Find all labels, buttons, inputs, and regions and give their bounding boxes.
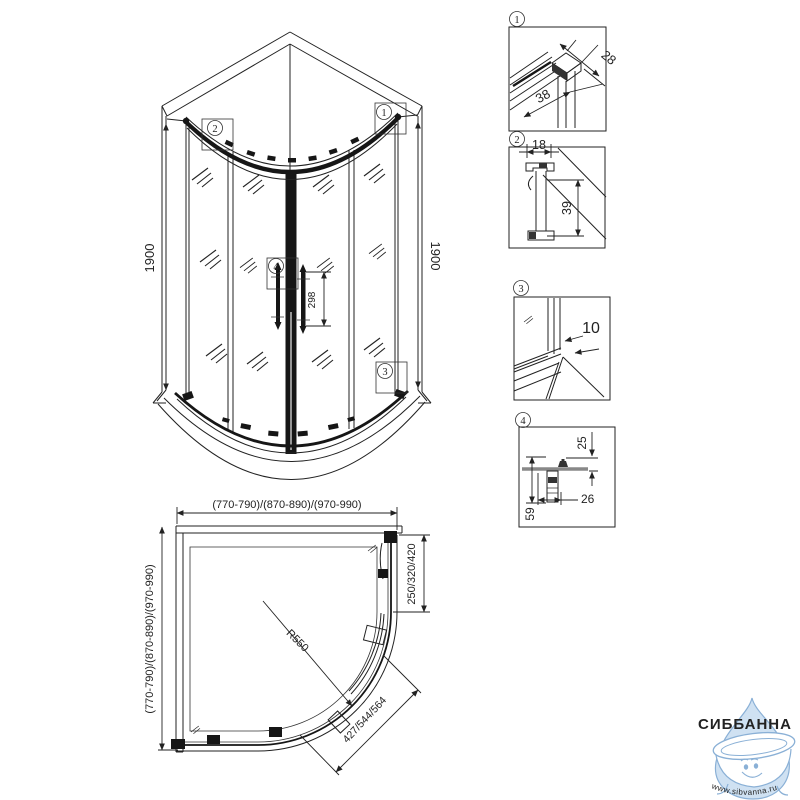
plan-glass-mark	[368, 545, 377, 553]
plan-width-dimension: (770-790)/(870-890)/(970-990)	[177, 499, 397, 530]
glass-front-inner	[183, 537, 388, 742]
sliding-door-edges	[349, 543, 384, 694]
glass-front-outer	[183, 535, 391, 745]
radius-dimension: R550	[263, 601, 352, 706]
side-opening-text: 250/320/420	[406, 543, 418, 604]
detail-3: 3 10	[514, 281, 611, 401]
detail-2-label: 2	[514, 135, 519, 146]
detail-4-dim-c: 59	[523, 507, 537, 521]
door-opening-text: 427/544/564	[341, 694, 390, 745]
detail-4: 4 25 26 59	[516, 413, 616, 528]
detail-2-frame	[509, 147, 605, 248]
detail-3-label: 3	[518, 284, 523, 295]
height-dim-left: 1900	[142, 244, 157, 273]
drawing-sheet: 298 1900 1900 1 2 3 4	[0, 0, 800, 800]
plan-width-text: (770-790)/(870-890)/(970-990)	[212, 499, 361, 511]
height-dim-right: 1900	[428, 242, 443, 271]
radius-text: R550	[284, 627, 311, 654]
detail-1-dim-a: 28	[598, 47, 619, 68]
brand-name: СИББАННА	[698, 716, 792, 733]
plan-glass-mark-2	[191, 726, 200, 734]
detail-4-dim-b: 26	[581, 492, 595, 506]
detail-4-label: 4	[520, 416, 526, 427]
shower-enclosure-technical-drawing: 298 1900 1900 1 2 3 4	[0, 0, 800, 800]
detail-2-dim-a: 18	[532, 138, 546, 152]
detail-2-dim-b: 39	[560, 201, 574, 215]
watermark-logo: СИББАННА www.sibvanna.ru	[698, 698, 796, 799]
callout-4-label: 4	[273, 262, 279, 273]
handle-height-dimension: 298	[306, 272, 331, 326]
elevation-view: 298 1900 1900 1 2 3 4	[142, 32, 443, 480]
detail-1-label: 1	[514, 15, 519, 26]
tray-basin-rim	[190, 547, 377, 731]
detail-1: 1 28 38	[509, 12, 619, 132]
callout-2-label: 2	[212, 124, 217, 135]
detail-4-dim-a: 25	[575, 436, 589, 450]
callout-3-label: 3	[382, 367, 387, 378]
detail-3-frame	[514, 297, 610, 400]
callout-1-label: 1	[381, 108, 386, 119]
detail-views: 1 28 38 2 18	[509, 12, 619, 528]
handle-dim-text: 298	[307, 291, 318, 308]
top-curved-rail	[167, 113, 417, 180]
plan-depth-dimension: (770-790)/(870-890)/(970-990)	[144, 527, 178, 750]
detail-2: 2 18 39	[509, 132, 606, 249]
side-opening-dimension: 250/320/420	[393, 535, 430, 612]
plan-view: (770-790)/(870-890)/(970-990) (770-790)/…	[144, 499, 430, 775]
plan-depth-text: (770-790)/(870-890)/(970-990)	[144, 564, 156, 713]
door-brackets	[328, 625, 386, 733]
detail-3-dim-a: 10	[582, 320, 600, 337]
